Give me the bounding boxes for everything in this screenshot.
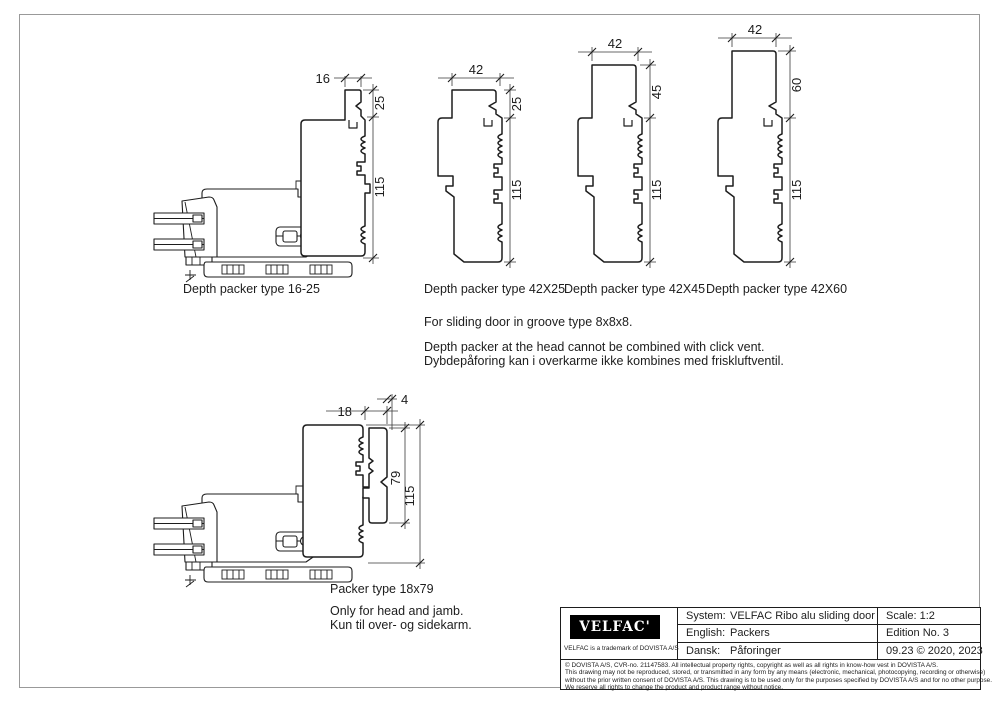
dim-42: 42 <box>718 22 792 47</box>
dim-115-label: 115 <box>509 180 524 201</box>
english-value: Packers <box>730 627 770 639</box>
label-drawing-42x60: Depth packer type 42X60 <box>706 282 847 296</box>
logo-trademark-note: VELFAC is a trademark of DOVISTA A/S <box>564 645 677 652</box>
legal-line-1: © DOVISTA A/S, CVR-no. 21147583. All int… <box>565 662 980 669</box>
dim-42-label: 42 <box>469 62 483 77</box>
dansk-row: Dansk: Påforinger <box>678 643 877 659</box>
logo-cell: VELFAC' VELFAC is a trademark of DOVISTA… <box>561 608 678 659</box>
legal-line-2: This drawing may not be reproduced, stor… <box>565 669 980 676</box>
english-label: English: <box>686 627 730 639</box>
dansk-value: Påforinger <box>730 645 781 657</box>
dim-4-label: 4 <box>401 392 408 407</box>
note-warning-da: Dybdepåforing kan i overkarme ikke kombi… <box>424 354 784 368</box>
dim-115-label: 115 <box>789 180 804 201</box>
label-drawing-18x79: Packer type 18x79 <box>330 582 434 596</box>
dim-16-label: 16 <box>316 71 330 86</box>
section-drawing-16-25: 16 25 115 <box>150 55 400 300</box>
dim-42-label: 42 <box>748 22 762 37</box>
dim-45-115: 45 115 <box>640 59 664 268</box>
dim-18: 18 <box>326 404 398 424</box>
section-drawing-42x60: 42 60 115 <box>705 20 820 295</box>
dim-45-label: 45 <box>649 85 664 99</box>
section-drawing-42x45: 42 45 115 <box>565 35 680 295</box>
legal-line-3: without the prior written consent of DOV… <box>565 677 980 684</box>
dim-60-label: 60 <box>789 78 804 92</box>
dansk-label: Dansk: <box>686 645 730 657</box>
packer-profile-16-25 <box>301 90 370 256</box>
dim-25-label: 25 <box>372 96 387 110</box>
dim-16: 16 <box>316 71 372 87</box>
title-block: VELFAC' VELFAC is a trademark of DOVISTA… <box>560 607 981 690</box>
dim-115-label: 115 <box>649 180 664 201</box>
dim-42: 42 <box>438 62 514 86</box>
meta-cell: Scale: 1:2 Edition No. 3 09.23 © 2020, 2… <box>878 608 980 659</box>
section-drawing-42x25: 42 25 115 <box>425 60 540 295</box>
packer-profile-18x79 <box>363 428 387 523</box>
drawing-sheet: 16 25 115 Depth packer type 16-25 42 25 … <box>0 0 1000 707</box>
english-row: English: Packers <box>678 625 877 642</box>
note-head-jamb-en: Only for head and jamb. <box>330 604 463 618</box>
note-warning-en: Depth packer at the head cannot be combi… <box>424 340 764 354</box>
legal-line-4: We reserve all rights to change the prod… <box>565 684 980 691</box>
velfac-logo: VELFAC' <box>570 615 660 639</box>
dim-42-label: 42 <box>608 36 622 51</box>
dim-25-115: 25 115 <box>504 84 524 268</box>
scale-row: Scale: 1:2 <box>878 608 980 625</box>
dim-79-label: 79 <box>388 471 403 485</box>
dim-25-115: 25 115 <box>363 84 387 264</box>
packer-profile-42x60 <box>718 51 782 262</box>
packer-profile-42x45 <box>578 65 642 262</box>
note-groove: For sliding door in groove type 8x8x8. <box>424 315 632 329</box>
dim-60-115: 60 115 <box>778 45 804 268</box>
dim-25-label: 25 <box>509 97 524 111</box>
dim-18-label: 18 <box>338 404 352 419</box>
date-row: 09.23 © 2020, 2023 <box>878 643 980 659</box>
dim-115-label: 115 <box>402 486 417 507</box>
dim-79: 79 <box>388 422 410 529</box>
system-label: System: <box>686 610 730 622</box>
legal-text: © DOVISTA A/S, CVR-no. 21147583. All int… <box>561 659 980 691</box>
dim-115-label: 115 <box>372 177 387 198</box>
edition-row: Edition No. 3 <box>878 625 980 642</box>
label-drawing-42x45: Depth packer type 42X45 <box>564 282 705 296</box>
system-cell: System: VELFAC Ribo alu sliding door Eng… <box>678 608 878 659</box>
system-row: System: VELFAC Ribo alu sliding door <box>678 608 877 625</box>
system-value: VELFAC Ribo alu sliding door <box>730 610 875 622</box>
label-drawing-42x25: Depth packer type 42X25 <box>424 282 565 296</box>
packer-profile-42x25 <box>438 90 502 262</box>
dim-42: 42 <box>578 36 652 61</box>
label-drawing-16-25: Depth packer type 16-25 <box>183 282 320 296</box>
section-drawing-18x79: 18 4 79 115 <box>146 390 440 585</box>
note-head-jamb-da: Kun til over- og sidekarm. <box>330 618 472 632</box>
head-profile <box>303 425 368 557</box>
